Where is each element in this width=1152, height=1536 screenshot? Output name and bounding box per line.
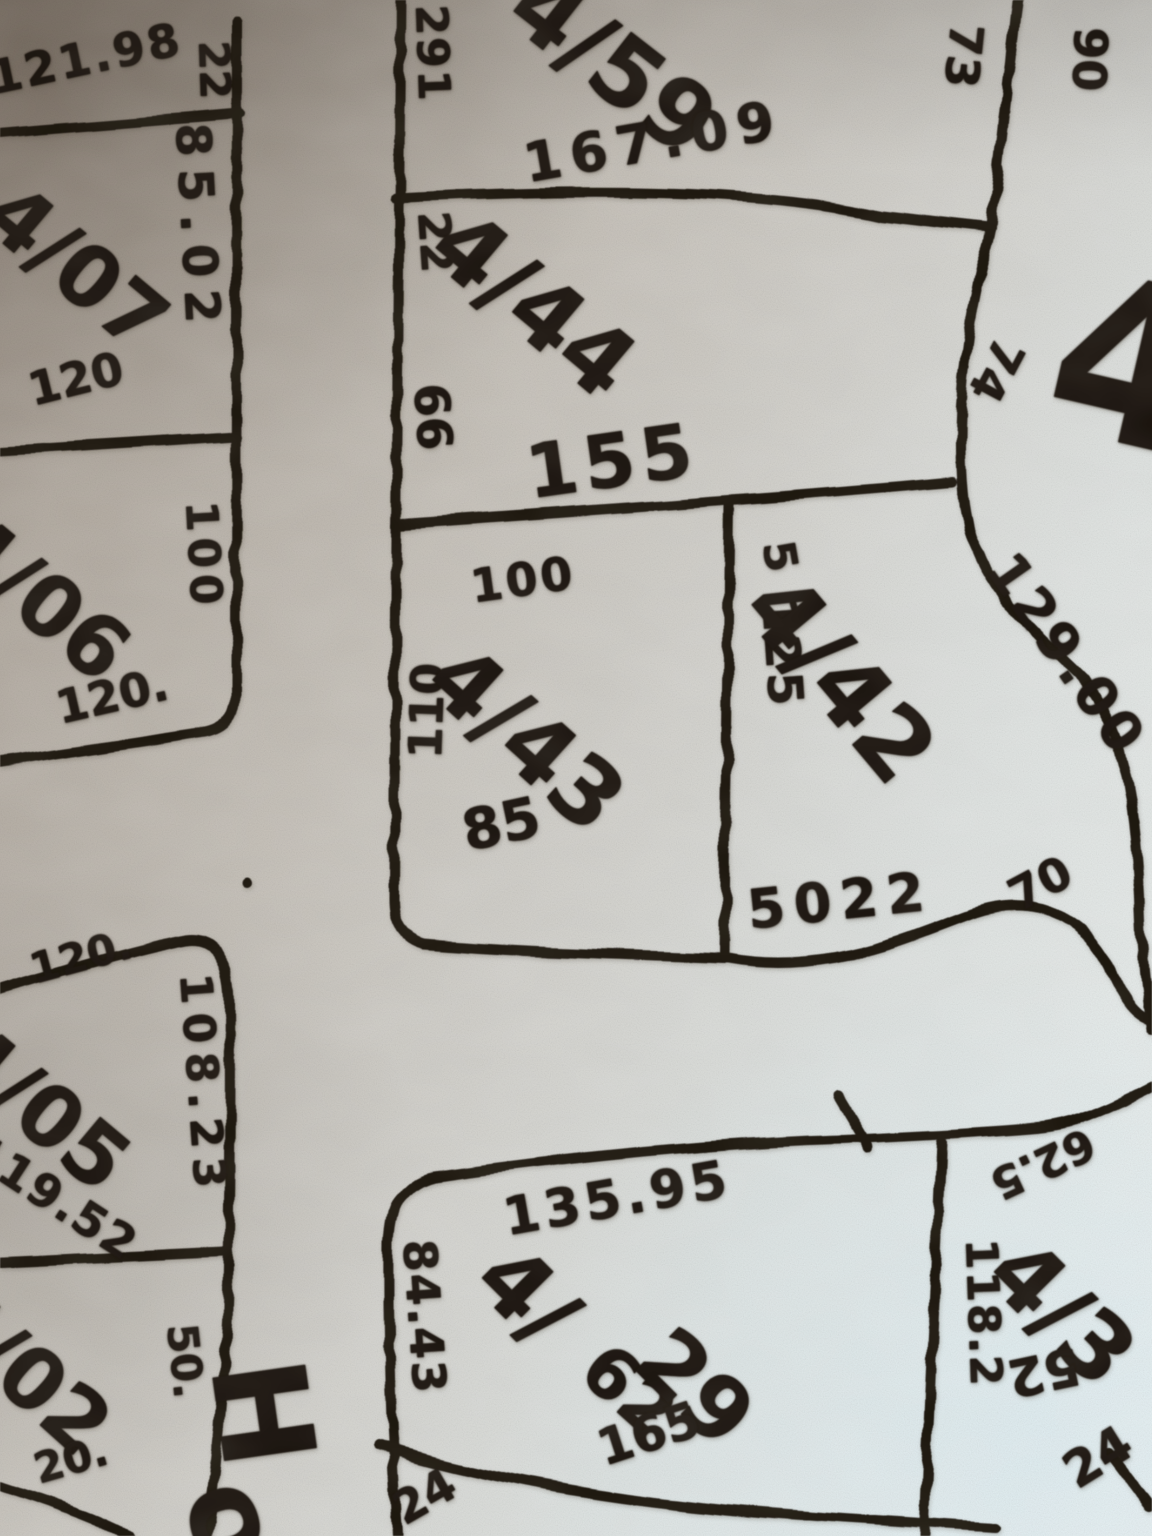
dim-c2-top: 100	[468, 551, 578, 608]
dim-n-left: 291	[410, 4, 454, 103]
ink-layer: 121.98 22 85.02 4/07 120 4/06 100 120. 1…	[0, 0, 1152, 1536]
dim-c1-left-bottom: 66	[408, 382, 457, 452]
boundary-c2-east	[724, 504, 730, 956]
dim-s2-mid: 52	[1003, 1339, 1084, 1401]
street-name-letter-h: H	[195, 1352, 327, 1474]
dim-c2-bottom: 85	[458, 792, 545, 859]
dim-sw-right: 108.23	[174, 972, 230, 1198]
dim-n-far-right: 90	[1067, 27, 1112, 92]
boundary-s-divider	[924, 1142, 941, 1536]
boundary-nw-divider	[0, 437, 237, 452]
boundary-ne-vertical	[992, 0, 1018, 228]
dim-w-right: 100	[180, 500, 226, 612]
boundary-sw-corner	[0, 1484, 128, 1536]
stray-dot	[242, 878, 252, 888]
dim-n-right: 73	[939, 22, 988, 90]
dim-nw-corner: 22	[193, 40, 234, 100]
boundary-s-bottom-curve	[378, 1446, 995, 1528]
dim-c1-area: 155	[522, 416, 702, 507]
dim-c3-bottom: 5022	[745, 867, 935, 936]
dim-s1-left: 84.43	[398, 1238, 451, 1396]
plat-map-photo: 121.98 22 85.02 4/07 120 4/06 100 120. 1…	[0, 0, 1152, 1536]
